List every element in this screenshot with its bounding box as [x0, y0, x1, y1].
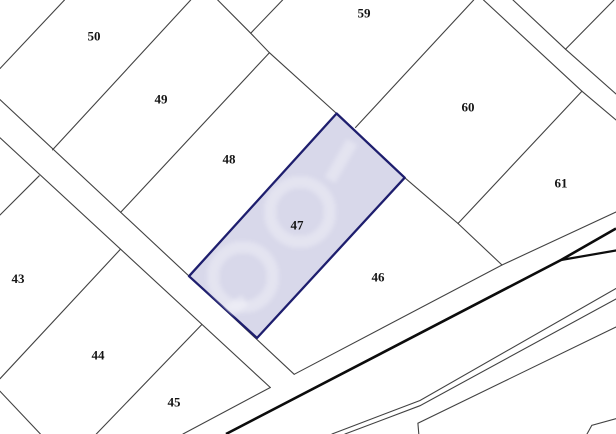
svg-text:43: 43: [12, 271, 26, 286]
svg-text:50: 50: [88, 29, 101, 44]
svg-text:44: 44: [92, 348, 106, 363]
svg-text:59: 59: [358, 6, 372, 21]
svg-text:45: 45: [168, 395, 182, 410]
svg-text:47: 47: [291, 218, 305, 233]
svg-text:46: 46: [372, 270, 386, 285]
svg-text:61: 61: [555, 176, 568, 191]
svg-text:48: 48: [223, 152, 237, 167]
svg-text:49: 49: [155, 92, 169, 107]
svg-text:60: 60: [462, 100, 475, 115]
